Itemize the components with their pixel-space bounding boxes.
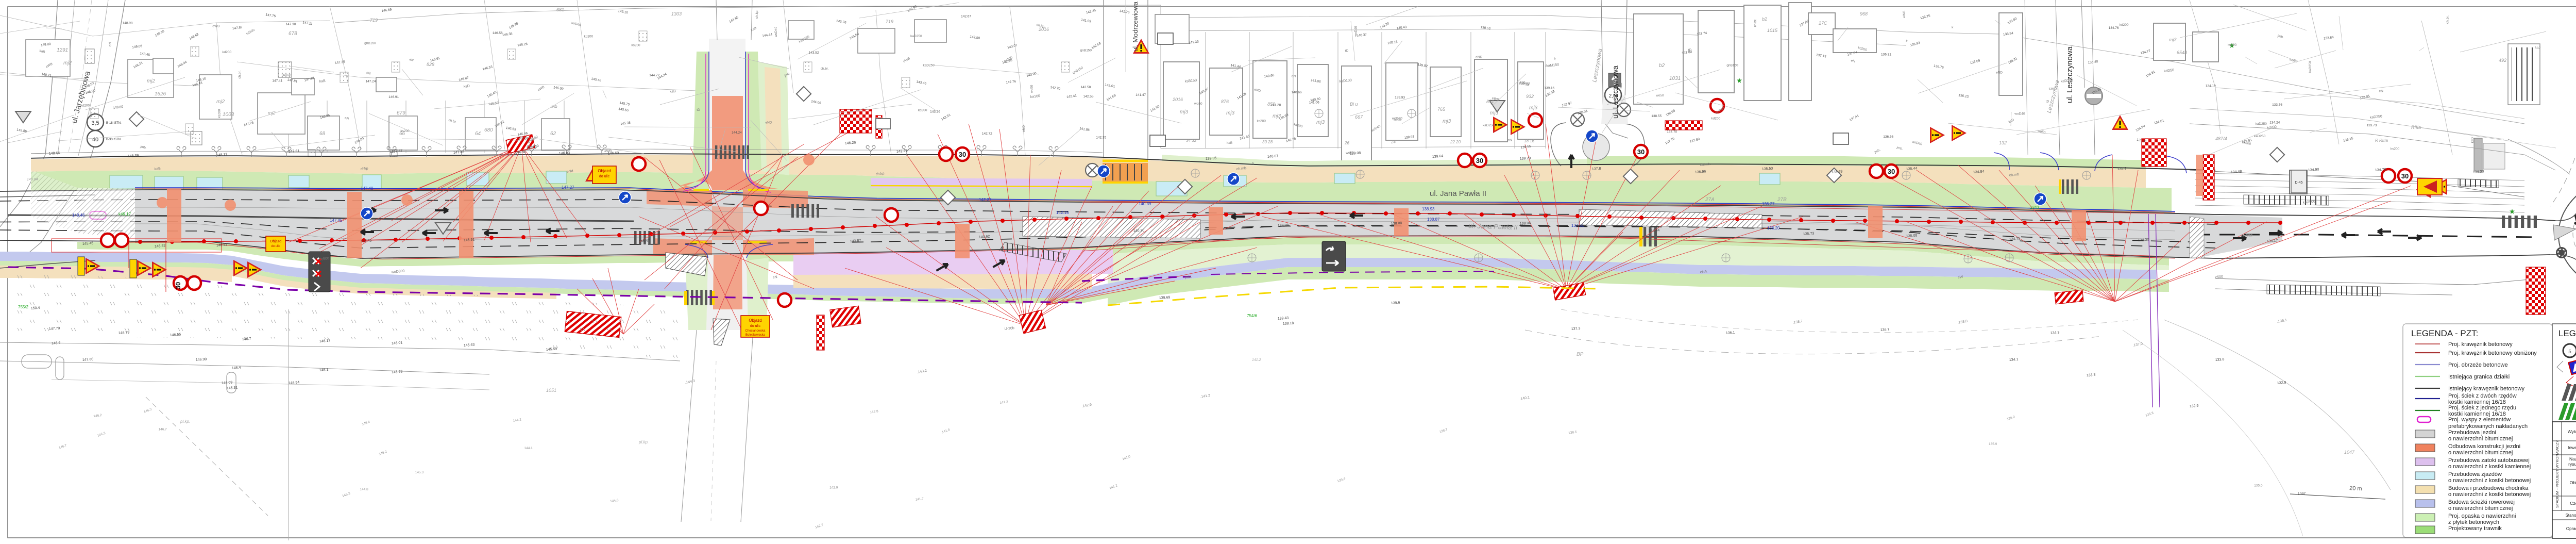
svg-text:141.69: 141.69 [1080,18,1091,23]
svg-text:mj3: mj3 [1316,120,1325,125]
svg-text:147.11: 147.11 [302,21,313,26]
svg-text:141.06: 141.06 [1309,101,1319,104]
svg-text:134.17: 134.17 [2267,239,2278,243]
svg-text:kaB: kaB [1619,83,1623,88]
svg-text:z płytek betonowych: z płytek betonowych [2448,519,2499,525]
svg-text:Istniejący krawęznik betonowy: Istniejący krawęznik betonowy [2448,386,2524,392]
svg-text:133.73: 133.73 [2367,124,2377,127]
svg-text:146.7: 146.7 [58,443,67,450]
svg-text:Objazd: Objazd [270,240,281,243]
svg-text:eND: eND [1996,71,2003,75]
svg-text:146.09: 146.09 [222,381,233,385]
svg-text:kaB: kaB [154,167,161,171]
svg-text:142.7: 142.7 [815,523,824,530]
svg-text:woD40: woD40 [1392,117,1403,120]
svg-text:142.76: 142.76 [1006,79,1016,85]
svg-text:141.7: 141.7 [915,497,924,502]
svg-text:eNd: eNd [566,170,573,174]
svg-text:138.6: 138.6 [1568,430,1577,435]
svg-text:146.3: 146.3 [143,407,152,414]
svg-text:147.45: 147.45 [361,239,372,243]
svg-text:26: 26 [1344,141,1349,145]
svg-text:40: 40 [92,137,98,143]
svg-text:148.17: 148.17 [216,153,228,157]
svg-text:135.71: 135.71 [2048,88,2059,91]
svg-text:141.2: 141.2 [999,400,1008,405]
svg-text:142.15: 142.15 [1056,210,1069,215]
svg-text:148.46: 148.46 [72,213,85,218]
svg-text:146.56: 146.56 [493,31,503,35]
svg-text:64: 64 [475,131,481,137]
svg-text:139.20: 139.20 [1520,157,1531,161]
svg-text:24: 24 [1391,140,1396,144]
svg-text:eWB: eWB [537,85,545,92]
svg-text:woD40: woD40 [1911,140,1923,146]
svg-text:kd200: kd200 [2120,23,2129,27]
svg-text:141.2: 141.2 [1109,484,1118,490]
svg-text:134.24: 134.24 [2269,121,2280,124]
svg-text:146.7: 146.7 [159,428,167,432]
svg-text:139.43: 139.43 [1278,317,1289,321]
svg-text:142.41: 142.41 [1066,94,1077,99]
svg-text:134.76: 134.76 [2109,26,2119,30]
svg-text:Chocianowska: Chocianowska [745,329,766,333]
svg-text:eND: eND [1476,55,1482,59]
svg-text:ks200: ks200 [2391,147,2400,151]
svg-text:ul. Leszczynowa: ul. Leszczynowa [1611,65,1619,119]
svg-text:138.66: 138.66 [1665,109,1676,117]
svg-text:679: 679 [397,110,405,116]
svg-text:142.37: 142.37 [979,197,992,202]
svg-text:do ulic: do ulic [750,324,761,328]
svg-text:ch.br.: ch.br. [238,71,242,79]
svg-text:o nawierzchni z kostki kamienn: o nawierzchni z kostki kamiennej [2448,464,2531,470]
svg-text:eN: eN [2379,90,2384,93]
svg-text:o nawierzchni bitumicznej: o nawierzchni bitumicznej [2448,436,2513,442]
svg-text:145.3: 145.3 [415,471,424,474]
svg-text:gnB150: gnB150 [1080,49,1092,53]
svg-text:145.38: 145.38 [620,121,631,126]
svg-text:140.30: 140.30 [1133,229,1145,233]
svg-text:134.3: 134.3 [2050,331,2060,335]
svg-text:139.88: 139.88 [1278,224,1289,228]
svg-text:k: k [1952,26,1954,29]
svg-text:jmb.: jmb. [140,145,147,150]
svg-text:146.90: 146.90 [196,358,207,362]
svg-text:146.69: 146.69 [381,8,392,13]
svg-text:.144.3: .144.3 [685,380,695,385]
svg-text:eWB: eWB [1903,11,1906,18]
svg-text:do ulic: do ulic [599,175,610,178]
svg-text:136.20: 136.20 [1767,226,1780,230]
svg-text:134.61: 134.61 [2145,70,2156,78]
svg-text:Objazd: Objazd [598,169,611,173]
svg-text:kd200: kd200 [2266,125,2277,130]
svg-text:kaD250: kaD250 [2369,114,2382,119]
svg-text:142.58: 142.58 [1080,86,1091,89]
svg-text:woD40: woD40 [774,26,778,38]
svg-text:141.68: 141.68 [1106,93,1117,102]
svg-text:147.87: 147.87 [232,26,243,31]
svg-text:ul. Jana Pawła II: ul. Jana Pawła II [1430,189,1486,198]
svg-text:139.93: 139.93 [1395,96,1405,100]
svg-text:ksD: ksD [2008,118,2015,124]
svg-text:139.82: 139.82 [1417,63,1428,68]
svg-text:mj2: mj2 [63,60,72,66]
svg-text:1003: 1003 [223,112,234,118]
svg-text:Proj. ściek z dwóch rzędów: Proj. ściek z dwóch rzędów [2448,393,2517,399]
svg-text:132: 132 [1999,140,2007,145]
svg-text:Leszczynowa: Leszczynowa [1591,48,1603,83]
svg-text:kaD250: kaD250 [2254,135,2266,138]
svg-text:jmb.: jmb. [1184,275,1192,279]
svg-text:mj3: mj3 [2169,37,2177,42]
svg-text:140.30: 140.30 [1379,22,1390,30]
svg-text:492: 492 [2499,58,2506,63]
svg-text:932: 932 [1526,94,1534,99]
svg-text:136.76: 136.76 [1934,64,1944,70]
svg-text:132.9: 132.9 [2277,381,2286,385]
svg-text:139.33: 139.33 [1545,90,1555,98]
svg-text:ch.kp.: ch.kp. [755,9,759,19]
svg-text:667: 667 [1355,114,1363,120]
svg-text:148.80: 148.80 [113,105,124,110]
svg-text:132.9: 132.9 [2190,404,2199,408]
svg-text:eN: eN [1851,59,1856,63]
svg-text:136.56: 136.56 [1883,135,1893,139]
svg-text:144.44: 144.44 [762,33,773,38]
svg-text:146.48: 146.48 [486,90,497,98]
svg-text:wo50: wo50 [1030,85,1034,93]
svg-text:tD: tD [1688,48,1692,52]
svg-text:144.0: 144.0 [610,499,619,503]
svg-text:134.1: 134.1 [2009,358,2019,362]
svg-text:140.66: 140.66 [1292,91,1302,94]
svg-text:145.2: 145.2 [378,450,387,456]
svg-text:133.76: 133.76 [2272,103,2282,107]
svg-text:LEGENDA - organizacja ruchu:: LEGENDA - organizacja ruchu: [2558,328,2576,338]
svg-text:148.98: 148.98 [123,22,133,25]
svg-text:b2: b2 [1659,63,1665,69]
svg-text:ch.br.: ch.br. [821,67,829,71]
svg-text:30: 30 [1637,148,1645,156]
svg-text:eWB: eWB [212,24,219,28]
svg-text:146.4: 146.4 [232,366,241,370]
svg-text:27B: 27B [1777,197,1787,203]
svg-text:RIIIa: RIIIa [2411,125,2421,130]
svg-text:144.2: 144.2 [513,418,521,423]
svg-text:141.33: 141.33 [1189,40,1199,45]
svg-text:1291: 1291 [57,47,68,53]
svg-text:149.86: 149.86 [16,128,27,133]
svg-text:144.06: 144.06 [810,100,821,105]
svg-text:147.35: 147.35 [335,60,346,65]
svg-text:eNA: eNA [1700,270,1707,274]
svg-text:147.70: 147.70 [49,327,60,331]
svg-text:gnB150: gnB150 [1726,63,1738,67]
svg-text:146.79: 146.79 [118,331,130,335]
svg-text:U-20b: U-20b [1004,326,1014,331]
svg-text:146.1: 146.1 [319,368,329,372]
svg-text:139.69: 139.69 [1159,296,1171,300]
svg-text:150.4: 150.4 [31,306,40,310]
svg-text:30: 30 [2401,172,2409,180]
svg-text:kd200: kd200 [1711,117,1720,121]
svg-text:135.08: 135.08 [1906,234,1918,238]
svg-text:30: 30 [959,151,966,158]
svg-text:143.51: 143.51 [941,113,952,121]
svg-text:140.39: 140.39 [1139,202,1151,206]
svg-text:143.76: 143.76 [836,19,846,24]
svg-text:gnB150: gnB150 [1072,66,1084,75]
svg-text:144.8: 144.8 [360,488,368,491]
svg-text:b2: b2 [1762,17,1767,22]
svg-text:3,5: 3,5 [91,120,99,126]
svg-text:Proj. wyspy z elementów: Proj. wyspy z elementów [2448,417,2511,423]
svg-text:Bi u: Bi u [1350,102,1358,107]
svg-text:146.91: 146.91 [388,95,399,99]
svg-text:k49.17: k49.17 [118,212,131,217]
svg-text:146.17: 146.17 [319,339,331,343]
svg-text:.143.2: .143.2 [917,369,927,374]
svg-text:D-45: D-45 [2295,181,2302,185]
svg-text:30 28: 30 28 [1262,140,1273,144]
svg-text:145.63: 145.63 [464,343,475,348]
svg-text:141.50: 141.50 [1149,105,1160,113]
svg-text:Przebudowa zjazdów: Przebudowa zjazdów [2448,471,2502,477]
svg-text:143.87: 143.87 [850,239,861,243]
svg-text:kaD250: kaD250 [2309,61,2312,73]
svg-text:prefabrykowanych nakładanych: prefabrykowanych nakładanych [2448,423,2528,430]
svg-text:146.2: 146.2 [93,414,102,418]
svg-text:148.02: 148.02 [281,73,292,77]
svg-text:jmb.: jmb. [1896,146,1904,151]
svg-text:876: 876 [1221,99,1229,104]
svg-text:139.35: 139.35 [1206,157,1217,161]
svg-text:ks200: ks200 [400,129,410,133]
svg-text:146.55: 146.55 [170,333,181,337]
svg-text:wo50: wo50 [1345,151,1354,155]
svg-text:ks200: ks200 [631,44,640,47]
svg-text:wo50: wo50 [1655,94,1664,97]
svg-text:Odbudowa konstrukcji jezdni: Odbudowa konstrukcji jezdni [2448,443,2520,450]
svg-text:146.87: 146.87 [459,76,469,82]
svg-text:142.55: 142.55 [1083,95,1094,98]
svg-text:30: 30 [174,282,182,289]
svg-text:Wykonał: Wykonał [2568,429,2576,434]
svg-text:142.72: 142.72 [982,132,992,136]
svg-text:142.27: 142.27 [896,150,908,154]
svg-text:kd200: kd200 [918,109,927,112]
svg-text:30: 30 [1888,168,1895,175]
svg-text:141.28: 141.28 [1270,103,1281,107]
svg-text:142.45: 142.45 [1086,9,1096,15]
svg-text:kb2: kb2 [2535,46,2540,50]
svg-text:tD: tD [2046,100,2049,103]
svg-text:147.42: 147.42 [453,151,465,155]
svg-text:Budowa ścieżki rowerowej: Budowa ścieżki rowerowej [2448,499,2515,505]
svg-text:ch.br.: ch.br. [448,119,457,124]
svg-text:ch.br.: ch.br. [1753,19,1757,27]
svg-text:R RIIIa: R RIIIa [2375,138,2388,143]
svg-text:143.00: 143.00 [1026,72,1037,78]
svg-text:134.30: 134.30 [2473,170,2484,174]
svg-text:134.9: 134.9 [2117,167,2127,171]
svg-text:147.27: 147.27 [562,185,574,190]
svg-text:eN: eN [108,42,112,46]
svg-text:1243: 1243 [2030,205,2039,210]
svg-text:134.90: 134.90 [2135,124,2146,133]
svg-text:Opracował: Opracował [2566,526,2576,531]
svg-text:719: 719 [370,18,378,23]
svg-text:147.60: 147.60 [82,358,94,362]
svg-text:o nawierzchni bitumicznej: o nawierzchni bitumicznej [2448,450,2513,456]
svg-text:136.23: 136.23 [1958,93,1969,98]
svg-text:.140.1: .140.1 [1519,396,1530,401]
svg-text:Przebudowa jezdni: Przebudowa jezdni [2448,430,2496,436]
svg-text:ch.br.: ch.br. [2446,15,2450,24]
svg-text:mj2: mj2 [147,78,156,84]
svg-text:136.27: 136.27 [1762,202,1775,206]
svg-text:145.47: 145.47 [639,239,650,243]
svg-text:146.53: 146.53 [505,126,516,131]
svg-text:2016: 2016 [1172,97,1183,102]
svg-text:B-18 ISTN.: B-18 ISTN. [106,122,122,125]
svg-text:136.1: 136.1 [1726,331,1735,335]
svg-text:144.1: 144.1 [524,447,533,450]
svg-text:Przebudowa zatoki autobusowej: Przebudowa zatoki autobusowej [2448,457,2530,464]
svg-text:765: 765 [1437,107,1446,112]
svg-text:kaD250: kaD250 [2255,122,2267,126]
svg-text:eWB: eWB [604,150,612,153]
svg-text:eN: eN [772,275,777,279]
svg-text:133.3: 133.3 [2087,373,2096,377]
svg-text:139.53: 139.53 [1480,25,1491,30]
svg-text:eN: eN [1292,74,1296,78]
svg-text:1015: 1015 [1767,28,1778,33]
svg-text:139.55: 139.55 [1520,144,1531,150]
svg-text:137.3: 137.3 [1571,327,1581,331]
svg-text:149.04: 149.04 [27,178,38,182]
svg-text:136.7: 136.7 [1880,328,1890,332]
svg-text:148.22: 148.22 [216,243,228,248]
svg-text:144.85: 144.85 [728,15,739,24]
svg-text:ikaM150: ikaM150 [1545,63,1559,68]
svg-text:147.41: 147.41 [272,79,282,83]
svg-text:678: 678 [289,31,297,37]
svg-text:jmb.: jmb. [1873,148,1881,155]
svg-text:142.8: 142.8 [870,409,878,414]
svg-text:135.9: 135.9 [1989,442,1997,446]
svg-text:148.04: 148.04 [177,60,188,69]
svg-text:ks200: ks200 [218,109,222,118]
svg-text:133.15: 133.15 [2343,137,2353,143]
svg-text:142.67: 142.67 [961,15,971,19]
svg-text:137.70: 137.70 [1667,130,1677,134]
svg-text:138.87: 138.87 [1427,217,1440,222]
svg-text:o nawierzchni z kostki betonow: o nawierzchni z kostki betonowej [2448,491,2531,498]
svg-text:o nawierzchni bitumicznej: o nawierzchni bitumicznej [2448,505,2513,512]
svg-text:139.15: 139.15 [1544,86,1554,90]
svg-text:kaD250: kaD250 [923,64,935,68]
svg-text:.138.0: .138.0 [1957,320,1968,325]
svg-text:62: 62 [550,131,556,137]
svg-text:142.70: 142.70 [1050,86,1061,91]
svg-text:136.96: 136.96 [1695,170,1706,174]
svg-text:142.35: 142.35 [1096,136,1106,140]
svg-text:gnB150: gnB150 [364,41,376,45]
svg-text:141.8: 141.8 [941,428,951,434]
svg-text:145.31: 145.31 [227,386,238,390]
svg-text:145.10: 145.10 [618,9,629,14]
svg-text:141.47: 141.47 [1136,93,1146,97]
svg-text:138.7: 138.7 [1439,427,1448,434]
svg-text:Projektowany trawnik: Projektowany trawnik [2448,525,2502,532]
svg-text:.137.0: .137.0 [2132,342,2143,348]
svg-text:27A: 27A [1705,197,1715,203]
svg-text:148.62: 148.62 [189,32,199,41]
svg-text:LEGENDA - PZT:: LEGENDA - PZT: [2411,328,2478,338]
svg-text:138.88: 138.88 [1391,222,1402,226]
svg-text:136.44: 136.44 [1649,229,1660,233]
svg-text:147.24: 147.24 [365,79,376,83]
svg-text:eND: eND [1022,125,1026,132]
svg-text:145.93: 145.93 [392,370,403,374]
svg-text:140.07: 140.07 [1267,155,1279,159]
svg-text:135.53: 135.53 [1762,167,1773,171]
svg-text:1047: 1047 [2344,450,2355,455]
svg-text:143.07: 143.07 [1007,43,1018,50]
svg-text:ks200: ks200 [2228,43,2237,47]
svg-text:kd200: kd200 [222,51,231,54]
svg-text:20 m: 20 m [2349,485,2362,492]
svg-text:146.3: 146.3 [97,432,106,438]
svg-text:tD: tD [1345,49,1349,53]
svg-text:142.9: 142.9 [829,486,838,490]
svg-text:134.75: 134.75 [2009,237,2021,241]
svg-text:138.93: 138.93 [1422,207,1435,211]
svg-text:Część: Część [2570,501,2576,506]
svg-text:140.37: 140.37 [1357,33,1367,38]
svg-text:144.72: 144.72 [649,74,659,77]
svg-text:148.18: 148.18 [155,29,165,38]
svg-text:ul. Modrzewiowa: ul. Modrzewiowa [1131,1,1139,52]
svg-text:135.40: 135.40 [2088,60,2098,65]
svg-text:18 16: 18 16 [1524,139,1535,143]
svg-text:Proj. opaska o nawierzchni: Proj. opaska o nawierzchni [2448,513,2516,519]
svg-text:146.83: 146.83 [559,152,570,156]
svg-text:6548: 6548 [2177,50,2187,55]
svg-text:147.49: 147.49 [361,186,374,191]
svg-text:143.52: 143.52 [809,51,819,55]
svg-text:STADIUM - PROJEKT WYKONAWCZY: STADIUM - PROJEKT WYKONAWCZY [2555,440,2560,508]
svg-text:1047: 1047 [2298,492,2306,496]
svg-text:719: 719 [886,19,893,24]
svg-text:o nawierzchni z kostki betonow: o nawierzchni z kostki betonowej [2448,477,2531,484]
svg-text:145.89: 145.89 [509,22,519,30]
svg-text:eN: eN [366,71,371,76]
svg-text:woD40: woD40 [1354,26,1358,37]
svg-text:1051: 1051 [546,388,556,393]
svg-text:149.06: 149.06 [132,44,143,50]
svg-text:140.62: 140.62 [979,235,990,239]
svg-text:woD300: woD300 [391,269,404,274]
svg-text:137.51: 137.51 [1571,223,1584,228]
svg-text:B-33 ISTN.: B-33 ISTN. [106,138,122,141]
svg-text:k: k [1553,57,1556,61]
svg-text:145.45: 145.45 [82,242,94,246]
svg-text:22 20: 22 20 [1450,140,1461,144]
